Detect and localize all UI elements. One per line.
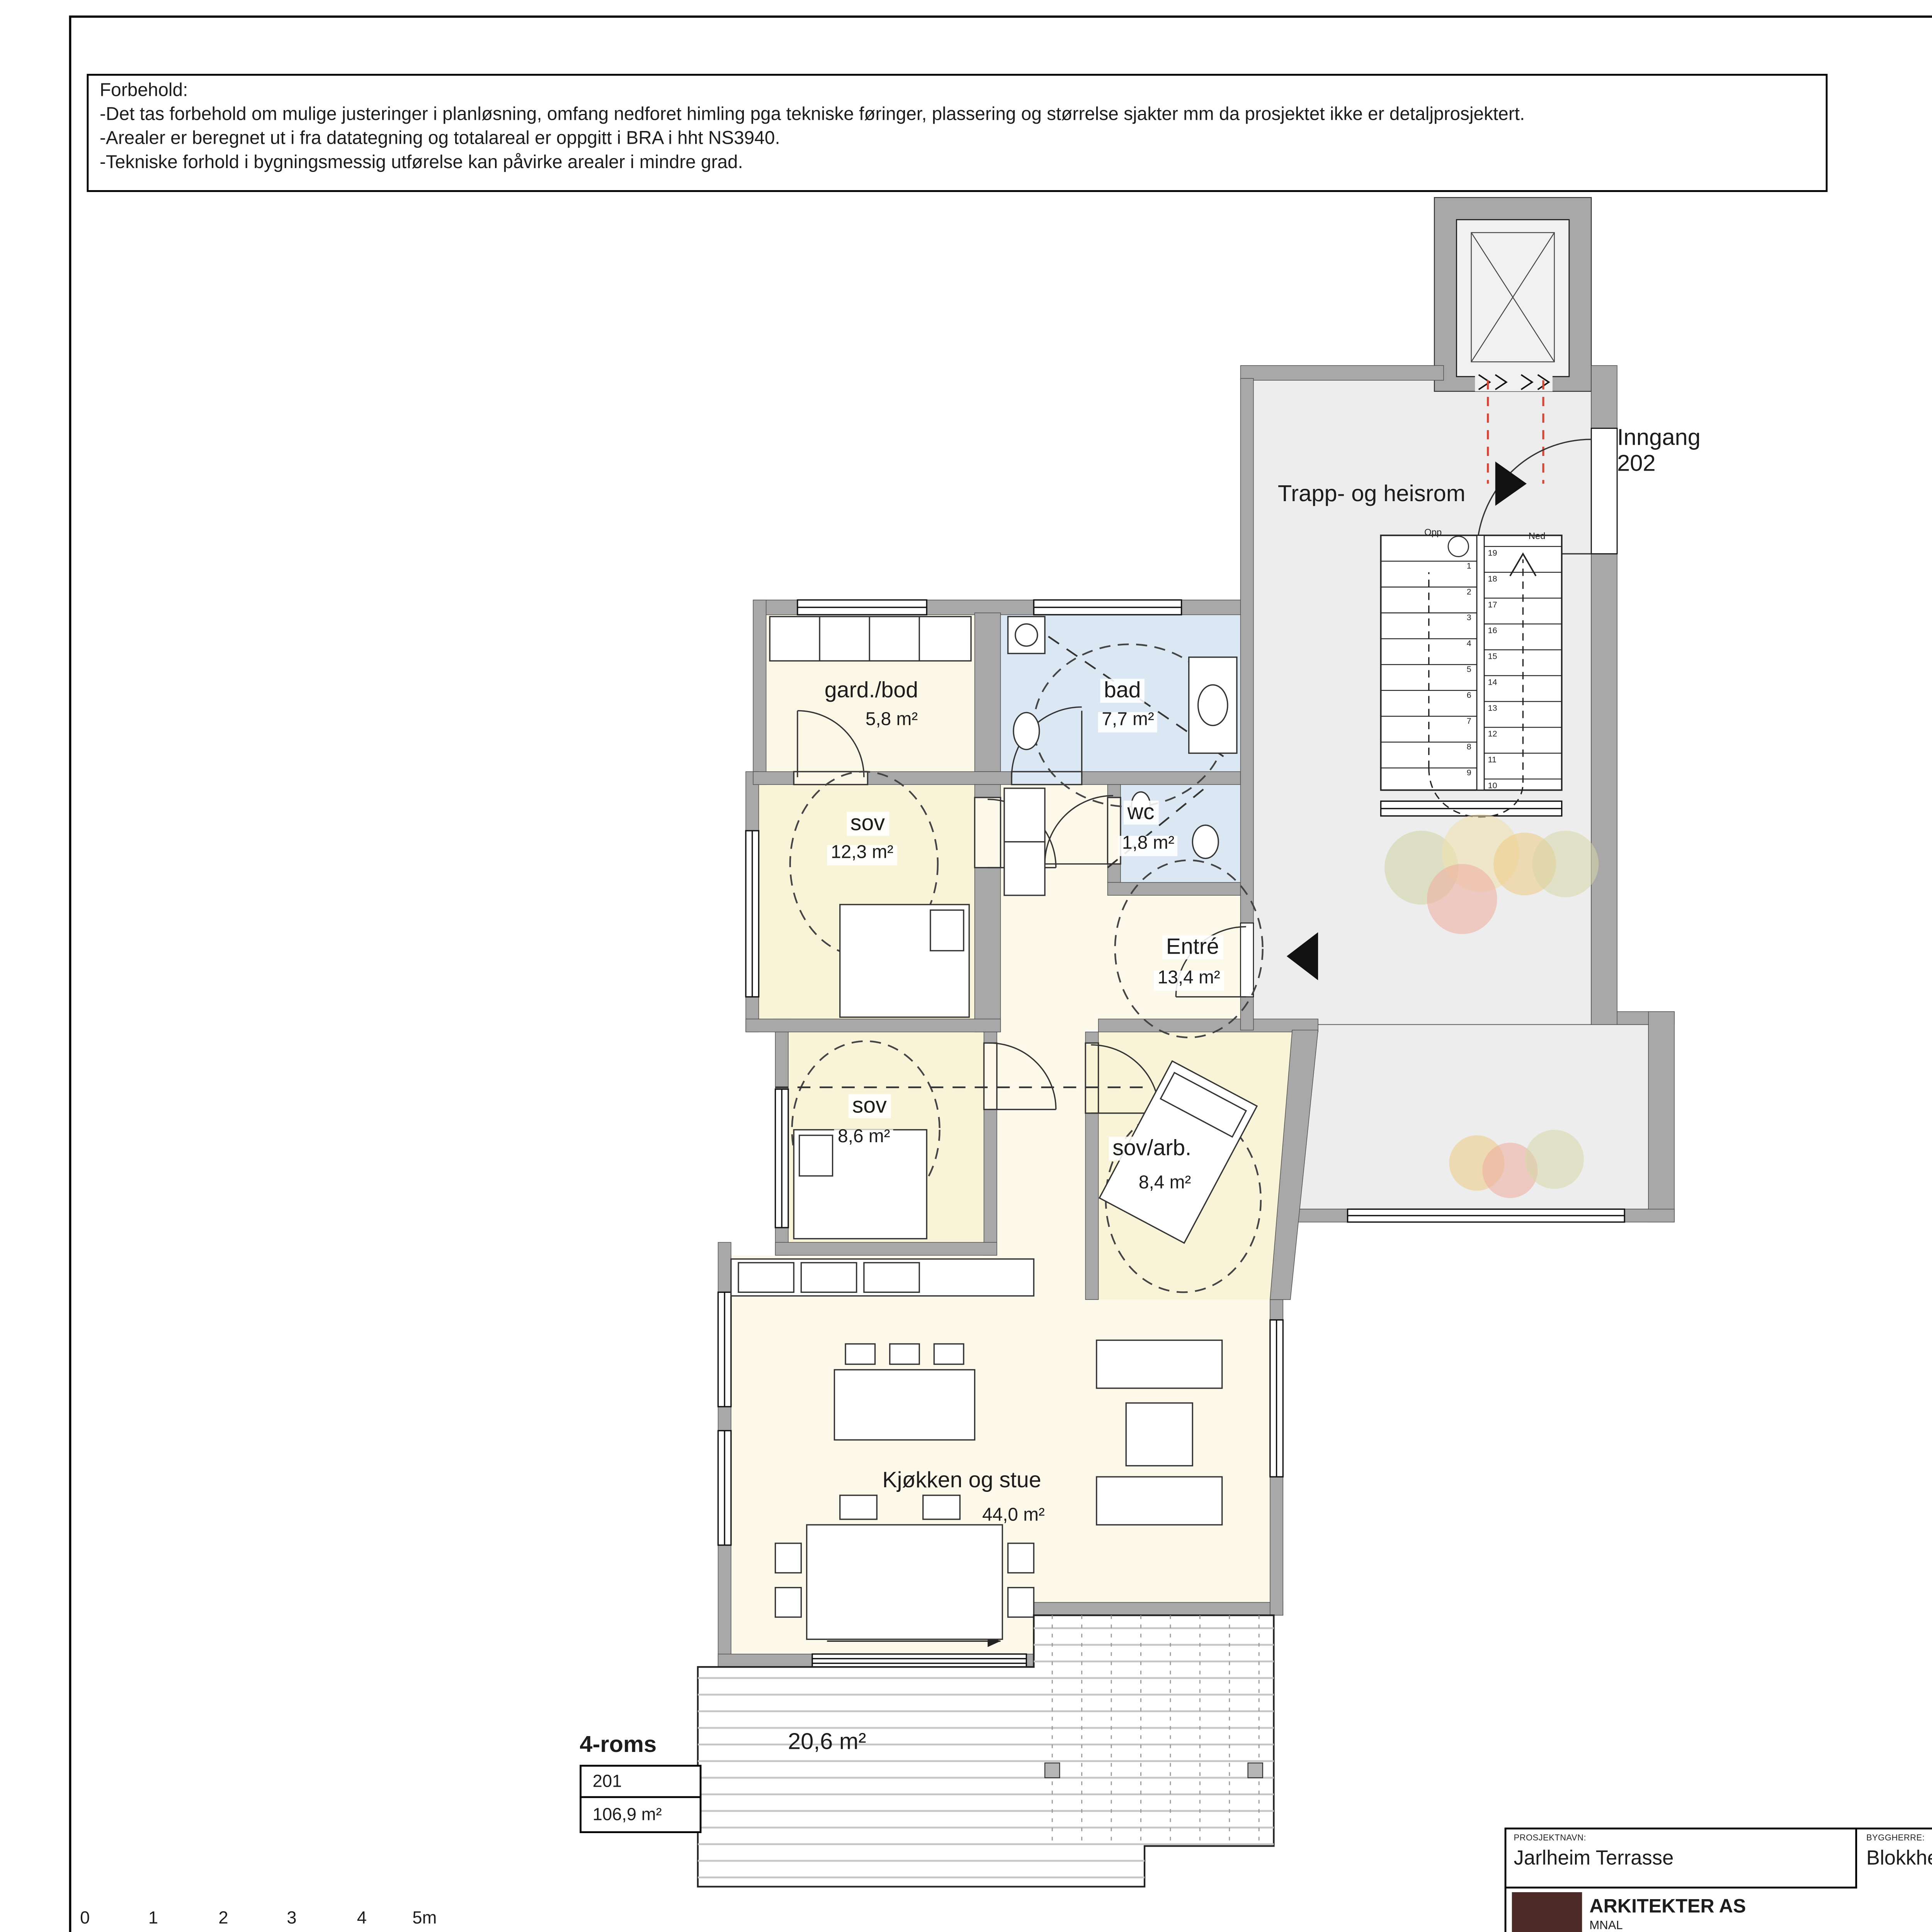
room-label-entre: Entré <box>1162 935 1223 959</box>
inngang-number: 202 <box>1617 451 1701 478</box>
skibnes-logo: SKIBNES <box>1512 1892 1582 1932</box>
apartment-type-label: 4-roms <box>580 1731 656 1758</box>
firm-name: ARKITEKTER AS <box>1589 1896 1853 1918</box>
window-living-right <box>1270 1320 1283 1477</box>
svg-text:13: 13 <box>1488 703 1497 713</box>
washer-icon <box>1008 617 1045 654</box>
room-label-sovarb: sov/arb. <box>1109 1137 1195 1160</box>
room-label-trapp: Trapp- og heisrom <box>1274 483 1469 507</box>
room-label-sov1: sov <box>847 812 888 835</box>
room-label-sov2: sov <box>849 1094 890 1117</box>
room-area-stue: 44,0 m² <box>978 1508 1048 1527</box>
stair-up-label: Opp <box>1424 527 1442 537</box>
corridor-floor <box>997 1019 1085 1299</box>
window-living-left-a <box>718 1292 731 1406</box>
room-area-sov1: 12,3 m² <box>827 845 897 864</box>
project-label: PROSJEKTNAVN: <box>1514 1833 1848 1842</box>
toilet-wc-icon <box>1192 825 1218 859</box>
client-label: BYGGHERRE: <box>1866 1833 1932 1842</box>
svg-text:8: 8 <box>1467 742 1471 752</box>
disclaimer-line: -Arealer er beregnet ut i fra datategnin… <box>100 129 1815 153</box>
title-block: PROSJEKTNAVN: Jarlheim Terrasse SKIBNES … <box>1505 1828 1932 1932</box>
svg-text:16: 16 <box>1488 626 1497 635</box>
svg-text:12: 12 <box>1488 729 1497 738</box>
disclaimer-line: -Tekniske forhold i bygningsmessig utfør… <box>100 153 1815 177</box>
wall-left-1 <box>753 600 766 785</box>
room-area-wc: 1,8 m² <box>1118 836 1178 855</box>
scale-tick: 3 <box>283 1911 300 1929</box>
window-gard-top <box>798 600 927 615</box>
disclaimer-line: -Det tas forbehold om mulige justeringer… <box>100 105 1815 129</box>
room-area-sov2: 8,6 m² <box>834 1129 894 1149</box>
svg-text:4: 4 <box>1467 639 1471 648</box>
wall-right-main <box>1591 554 1617 1024</box>
scale-tick: 5m <box>409 1911 440 1929</box>
svg-text:6: 6 <box>1467 690 1471 700</box>
svg-text:7: 7 <box>1467 716 1471 726</box>
apartment-area-box: 106,9 m² <box>580 1796 701 1833</box>
scale-tick: 1 <box>145 1911 162 1929</box>
firm-details: ARKITEKTER AS MNAL Dronningens gate 66, … <box>1589 1896 1853 1932</box>
stair-down-label: Ned <box>1529 531 1546 541</box>
elevator-door-gap <box>1475 373 1553 391</box>
svg-text:18: 18 <box>1488 574 1497 583</box>
room-label-inngang: Inngang 202 <box>1617 425 1701 478</box>
wall-sov2-bottom <box>776 1242 997 1255</box>
svg-text:10: 10 <box>1488 781 1497 790</box>
wall-sovarb-top <box>1099 1019 1318 1032</box>
disclaimer-box: Forbehold: -Det tas forbehold om mulige … <box>87 74 1828 192</box>
svg-text:19: 19 <box>1488 548 1497 558</box>
svg-text:9: 9 <box>1467 768 1471 777</box>
svg-text:14: 14 <box>1488 677 1497 687</box>
wall-apt-right-lower <box>1240 997 1253 1030</box>
wall-sov1-bottom <box>746 1019 1000 1032</box>
architect-firm-cell: SKIBNES ARKITEKTER AS MNAL Dronningens g… <box>1506 1888 1857 1932</box>
bed-sov1 <box>840 905 969 1017</box>
svg-text:2: 2 <box>1467 587 1471 596</box>
wall-court-right <box>1648 1012 1674 1222</box>
scale-tick: 2 <box>215 1911 232 1929</box>
wardrobe-gard <box>770 617 971 661</box>
floor-plan-graphics: 1 2 3 4 5 6 7 8 9 19 18 17 16 15 14 13 1… <box>0 0 1932 1932</box>
room-area-bad: 7,7 m² <box>1098 712 1158 731</box>
bath-vanity <box>1189 657 1237 753</box>
window-sov1-left <box>746 831 759 997</box>
window-bad-top <box>1034 600 1181 615</box>
toilet-bad-icon <box>1014 713 1039 750</box>
svg-text:11: 11 <box>1488 755 1497 764</box>
pergola-post <box>1045 1763 1060 1778</box>
title-client-cell: BYGGHERRE: Blokkheim AS <box>1857 1830 1932 1932</box>
window-terrace-slider <box>812 1654 1026 1667</box>
drawing-sheet: 1 2 3 4 5 6 7 8 9 19 18 17 16 15 14 13 1… <box>0 0 1932 1932</box>
window-living-left-b <box>718 1431 731 1545</box>
scale-tick: 0 <box>77 1911 94 1929</box>
room-label-bad: bad <box>1100 679 1145 702</box>
wardrobe-entre <box>1004 788 1045 895</box>
wall-right-upper <box>1591 366 1617 428</box>
wall-apt-right-upper <box>1240 378 1253 923</box>
apartment-number-box: 201 <box>580 1765 701 1800</box>
client-name: Blokkheim AS <box>1866 1848 1932 1870</box>
firm-association: MNAL <box>1589 1920 1853 1932</box>
kitchen-island <box>834 1344 975 1440</box>
svg-text:3: 3 <box>1467 613 1471 622</box>
stairs: 1 2 3 4 5 6 7 8 9 19 18 17 16 15 14 13 1… <box>1381 527 1562 817</box>
room-area-sovarb: 8,4 m² <box>1135 1175 1195 1195</box>
project-name: Jarlheim Terrasse <box>1514 1848 1848 1870</box>
wall-bottom-right <box>1021 1602 1283 1615</box>
room-area-entre: 13,4 m² <box>1154 971 1224 990</box>
elevator-cab <box>1456 220 1569 377</box>
svg-text:5: 5 <box>1467 665 1471 674</box>
stair-step-number: 1 <box>1467 561 1471 570</box>
pergola-post <box>1248 1763 1263 1778</box>
disclaimer-title: Forbehold: <box>100 81 1815 105</box>
window-court-bottom <box>1348 1209 1625 1222</box>
inngang-label: Inngang <box>1617 425 1701 451</box>
window-sov2-left <box>776 1089 788 1228</box>
wall-wc-bottom <box>1108 883 1241 895</box>
svg-text:15: 15 <box>1488 652 1497 661</box>
terrace-area-label: 20,6 m² <box>784 1731 870 1755</box>
kitchen-counter <box>731 1259 1034 1296</box>
wall-gard-bad <box>975 613 1001 772</box>
room-label-stue: Kjøkken og stue <box>879 1469 1045 1492</box>
room-label-wc: wc <box>1124 801 1158 824</box>
scale-tick: 4 <box>353 1911 370 1929</box>
room-label-gard: gard./bod <box>821 679 922 702</box>
window-stair-band <box>1381 801 1562 816</box>
room-area-gard: 5,8 m² <box>862 712 922 731</box>
stair-spine <box>1477 535 1484 790</box>
wall-stair-top <box>1240 366 1444 380</box>
title-project-cell: PROSJEKTNAVN: Jarlheim Terrasse <box>1506 1830 1857 1889</box>
svg-text:17: 17 <box>1488 600 1497 609</box>
